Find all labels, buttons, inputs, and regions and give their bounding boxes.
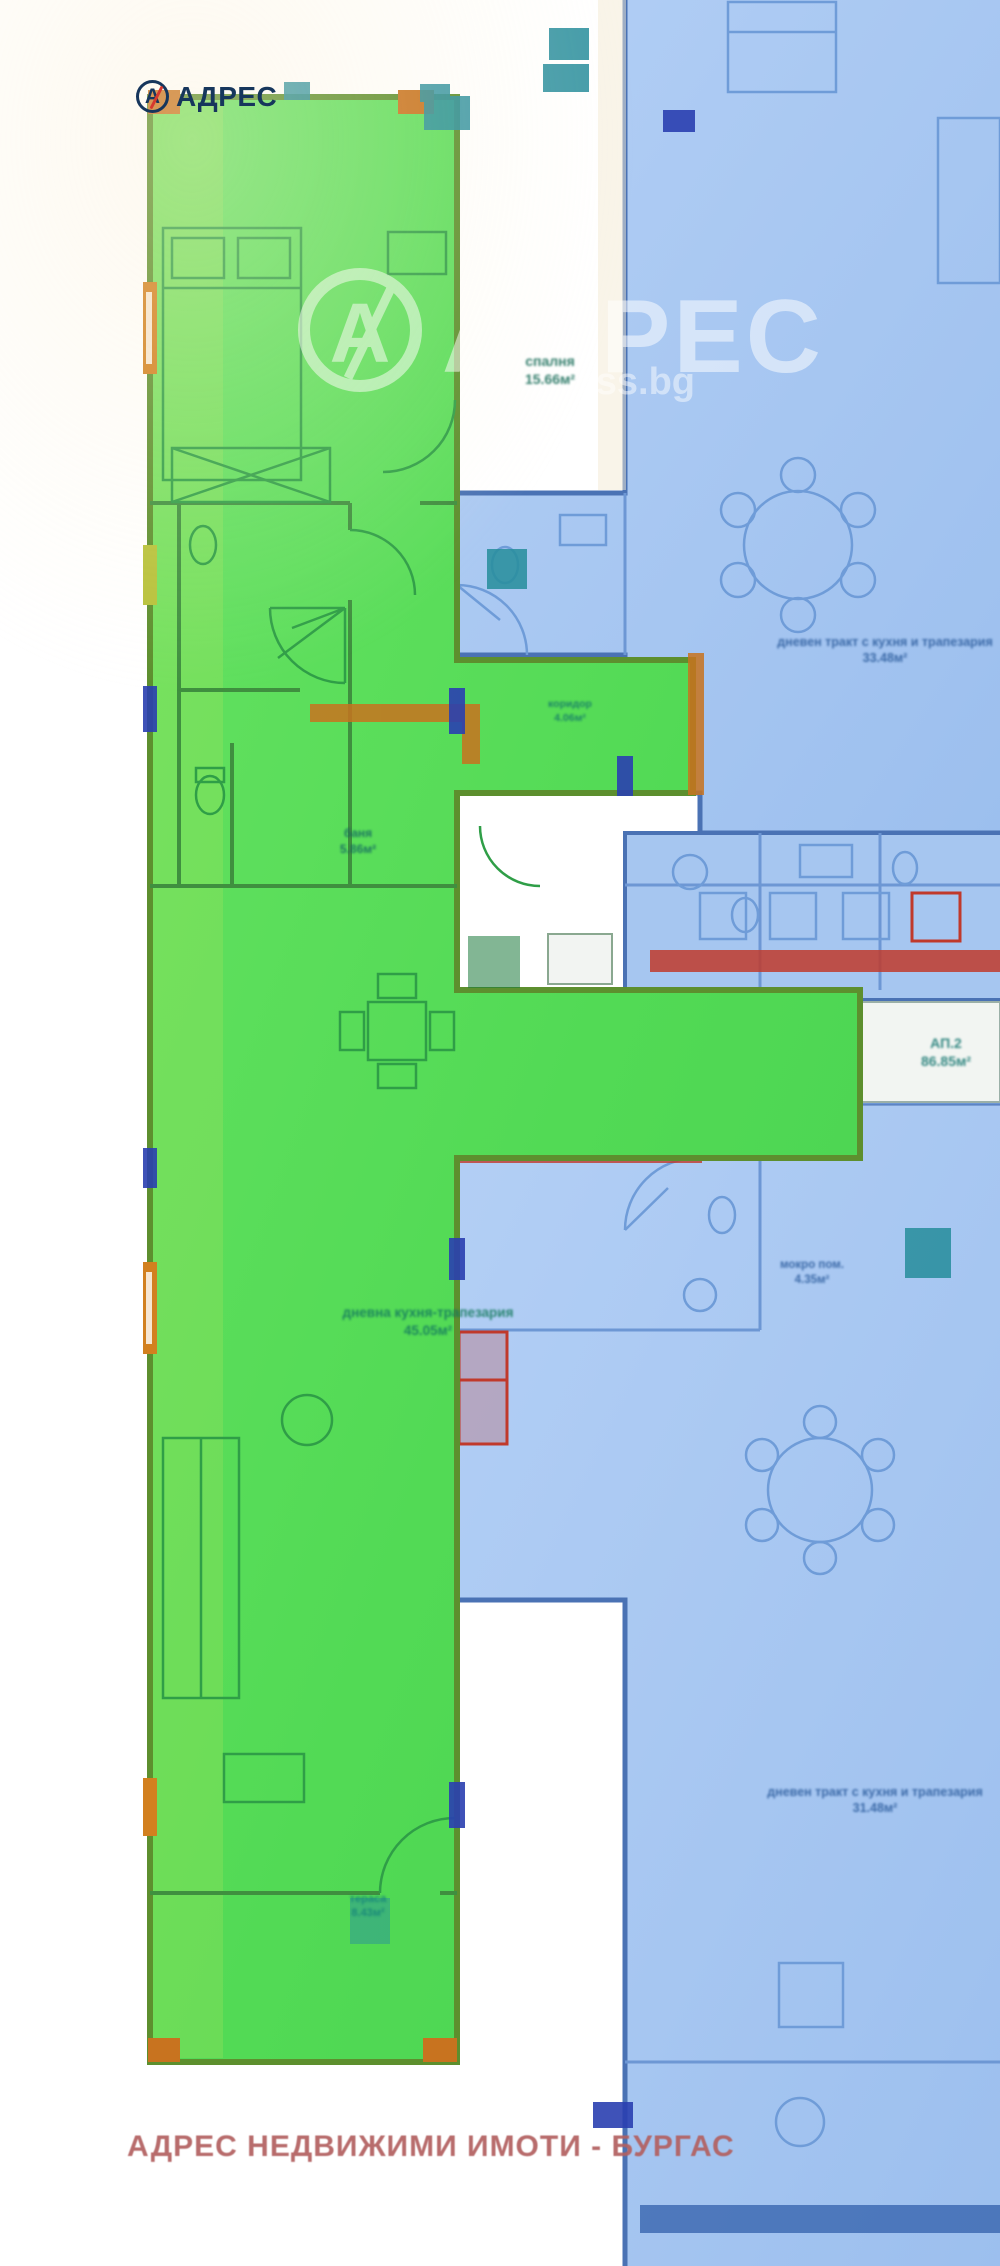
room-label-bathroom: баня5.86м² (340, 826, 376, 857)
blue-terrace-rail (640, 2205, 1000, 2233)
room-label-unit-badge: АП.286.85м² (921, 1034, 971, 1070)
adres-logo-a-circle-icon: А (136, 80, 169, 113)
room-label-blue-bottom-living: дневен тракт с кухня и трапезария31.48м² (767, 1784, 983, 1817)
floorplan-page: { "logo": { "icon_letter": "А", "text": … (0, 0, 1000, 2266)
room-label-living-room: дневна кухня-трапезария45.05м² (343, 1304, 514, 1339)
entry-door-mark (468, 936, 520, 988)
adres-logo-text: АДРЕС (176, 81, 277, 113)
floorplan-image: А АДРЕС address.bg (0, 0, 1000, 2266)
room-label-bedroom: спалня15.66м² (525, 352, 575, 388)
room-label-terrace: тераса8.43м² (350, 1892, 387, 1921)
adres-logo: А АДРЕС (136, 80, 277, 113)
room-label-blue-top-living: дневен тракт с кухня и трапезария33.48м² (777, 634, 993, 667)
footer-agency-text: АДРЕС НЕДВИЖИМИ ИМОТИ - БУРГАС (127, 2130, 735, 2164)
room-label-hallway: коридор4.06м² (548, 698, 592, 725)
watermark-site-text: address.bg (492, 361, 695, 403)
electrical-panel (548, 934, 612, 984)
room-label-blue-wc: мокро пом.4.35м² (780, 1258, 844, 1288)
